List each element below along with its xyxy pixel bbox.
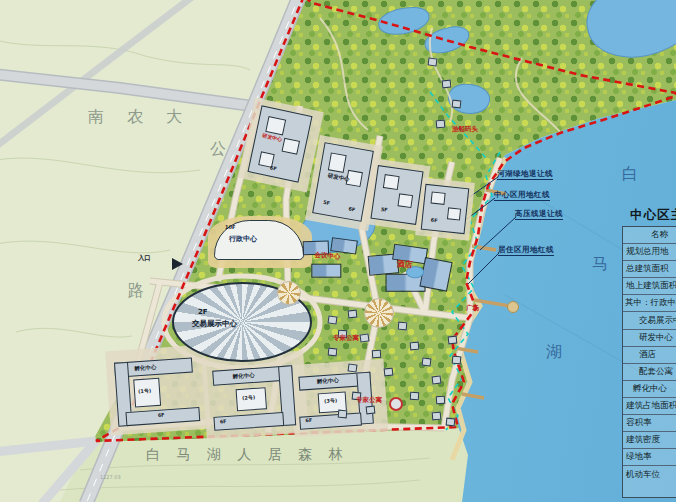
annotation-hv-setback: 高压线退让线 [515, 209, 563, 220]
incubator-2-building: 孵化中心 (2号) 6F [206, 355, 303, 435]
road-label-char-2: 路 [128, 282, 144, 300]
legend-row: 配套公寓 [623, 364, 676, 381]
lake-name-char-1: 白 [622, 164, 638, 185]
legend-title: 中心区主要经济技术指标 [630, 208, 676, 222]
legend-row: 绿地率 [623, 449, 676, 466]
incubator-2-floors: 6F [220, 419, 227, 425]
apartments-label-2: 专家公寓 [356, 397, 382, 404]
rnd-building-c: 5F [370, 165, 423, 225]
incubator-3-floors: 6F [305, 418, 312, 424]
villa [338, 410, 348, 419]
hotel-cluster: 酒店 [367, 244, 454, 304]
villa [328, 348, 338, 357]
legend-row-label: 容积率 [626, 417, 652, 429]
legend-row-label: 配套公寓 [639, 366, 673, 378]
villa [442, 80, 452, 89]
entrance-arrow-icon [172, 258, 183, 270]
admin-label: 行政中心 [229, 235, 257, 243]
villa [446, 418, 456, 427]
legend-row-label: 名称 [651, 229, 668, 241]
conference-center-cluster: 会议中心 [298, 234, 363, 288]
villa [427, 57, 437, 66]
annotation-center-redline: 中心区用地红线 [494, 190, 550, 201]
villa [452, 100, 462, 109]
conference-label: 会议中心 [314, 252, 340, 261]
exhibition-label: 交易展示中心 [192, 320, 237, 329]
legend-row-label: 孵化中心 [633, 383, 667, 395]
legend-row: 地上建筑面积 [623, 278, 676, 295]
lake-name-char-3: 湖 [546, 342, 562, 363]
annotation-residential-redline: 居住区用地红线 [498, 245, 554, 256]
villa [398, 322, 408, 331]
floor-label: 6F [348, 206, 356, 213]
villa [436, 120, 446, 129]
incubator-1-unit: (1号) [138, 388, 151, 395]
entrance-label: 入口 [138, 255, 151, 262]
road-label-char-1: 公 [210, 140, 226, 158]
legend-row: 容积率 [623, 415, 676, 432]
admin-floors: 10F [225, 225, 235, 231]
legend-row: 酒店 [623, 347, 676, 364]
villa [327, 315, 337, 324]
legend-row-label: 地上建筑面积 [626, 280, 676, 292]
villa [448, 336, 458, 345]
ornate-plaza [364, 298, 394, 328]
legend-row: 其中：行政中心 [623, 295, 676, 312]
legend-row: 规划总用地 [623, 244, 676, 261]
master-plan-map: 研发中心 6F 研发中心 5F 6F 5F 6F 10F 行政中心 2F 交易展… [0, 0, 676, 502]
waterfront-plaza-label: 广场 [466, 305, 479, 312]
legend-row: 建筑密度 [623, 432, 676, 449]
hotel-label: 酒店 [396, 259, 412, 269]
villa [372, 350, 382, 359]
villa [436, 396, 446, 405]
legend-row-label: 总建筑面积 [626, 263, 669, 275]
legend-row: 交易展示中心 [623, 312, 676, 329]
survey-mark: 1127.03 [100, 475, 121, 481]
legend-row-label: 研发中心 [639, 332, 673, 344]
annotation-green-setback: 河湖绿地退让线 [497, 169, 553, 180]
floor-label: 6F [269, 165, 277, 172]
forest-label: 白 马 湖 人 居 森 林 [146, 446, 349, 462]
lake-name-char-2: 马 [592, 254, 608, 275]
legend-row-label: 交易展示中心 [639, 315, 676, 327]
legend-row-label: 建筑密度 [626, 434, 660, 446]
floor-label: 5F [380, 207, 388, 214]
incubator-2-unit: (2号) [242, 395, 255, 402]
legend-row: 建筑占地面积 [623, 398, 676, 415]
legend-row: 名称 [623, 227, 676, 244]
apartments-label-1: 专家公寓 [333, 335, 359, 342]
villa [410, 392, 420, 401]
villa [422, 357, 432, 366]
villa [347, 363, 357, 372]
rnd-building-d: 6F [421, 184, 470, 234]
university-label: 南 农 大 [88, 108, 191, 126]
legend-row-label: 其中：行政中心 [625, 297, 676, 309]
villa [410, 342, 420, 351]
star-plaza [277, 281, 301, 305]
incubator-1-building: 孵化中心 (1号) 6F [109, 349, 202, 431]
legend-row-label: 机动车位 [626, 469, 660, 481]
legend-row: 总建筑面积 [623, 261, 676, 278]
red-ring-plaza [389, 397, 403, 411]
villa [359, 333, 369, 342]
legend-row: 孵化中心 [623, 381, 676, 398]
legend-row-label: 规划总用地 [626, 246, 669, 258]
villa [432, 412, 442, 421]
legend-row-label: 酒店 [639, 349, 656, 361]
exhibition-floors: 2F [198, 308, 208, 316]
villa [432, 375, 442, 384]
villa [366, 406, 376, 415]
villa [384, 368, 394, 377]
incubator-3-unit: (3号) [324, 398, 337, 405]
marina-label: 游船码头 [452, 126, 478, 133]
legend-row-label: 建筑占地面积 [626, 400, 676, 412]
incubator-1-floors: 6F [158, 412, 165, 418]
floor-label: 5F [323, 200, 331, 207]
floor-label: 6F [430, 218, 437, 224]
villa [452, 356, 462, 365]
legend-row: 研发中心 [623, 330, 676, 347]
legend-row-label: 绿地率 [626, 451, 652, 463]
legend-table: 名称 规划总用地 总建筑面积 地上建筑面积 其中：行政中心 交易展示中心 研发中… [622, 226, 676, 498]
legend-row: 机动车位 [623, 466, 676, 483]
villa [348, 310, 358, 319]
